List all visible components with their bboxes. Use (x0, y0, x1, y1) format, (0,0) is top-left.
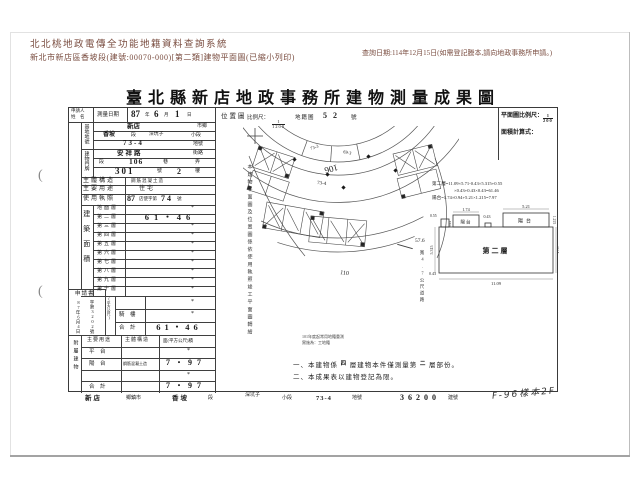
dim-label: 11.09 (491, 281, 502, 286)
attached-row-value: * (187, 348, 190, 355)
floor-label: 第二層 (97, 215, 118, 221)
dim-label: 5.21 (522, 204, 530, 209)
floor-plan: 第二層 陽台 陽台 5.21 1.74 0.55 0.43 0.94 1.215… (429, 203, 559, 291)
document-title: 臺北縣新店地政事務所建物測量成果圖 (68, 84, 558, 108)
floor-plan-room-label: 第二層 (483, 246, 510, 255)
rule (69, 122, 215, 123)
attached-row-use: 陽 台 (89, 361, 106, 367)
rule (81, 347, 215, 348)
resurvey-stamp: 101年度起常用地籍重測 (302, 335, 344, 339)
arcade-value: * (191, 311, 194, 318)
dim-label: 0.94 (448, 221, 452, 227)
rule (498, 108, 499, 160)
survey-date-day-unit: 日 (187, 113, 192, 118)
rule (69, 335, 215, 336)
door-section-label: 建物門牌 (83, 151, 89, 175)
license-label: 使用執照 (83, 196, 115, 203)
remark-1-text: 一、本建物係 (293, 362, 338, 369)
floor-label: 第八層 (97, 269, 118, 275)
floor-label: 第三層 (97, 224, 118, 230)
area-calc-label: 面積計算式： (501, 130, 537, 137)
rule (81, 149, 215, 150)
dim-label: 1.215 (552, 216, 556, 225)
attached-total-label: 合 計 (89, 384, 106, 390)
license-text: 店使字第 (139, 197, 157, 202)
attached-header-area: 面(平方公尺)積 (163, 339, 193, 344)
location-map: 106 73-3 69-3 73-4 110 (243, 126, 459, 296)
distance-value: 57.6 (415, 238, 425, 244)
remark-1-fill: 二 (420, 361, 427, 367)
rule (93, 140, 215, 141)
area-formula-line3: 陽台=1.74×0.94+5.21×1.215=7.97 (432, 195, 497, 200)
survey-date-day: 1 (175, 110, 180, 120)
remark-1-text: 層部份。 (429, 362, 459, 369)
structure-label: 主體構造 (83, 178, 115, 185)
footer-township-label: 鄉鎮市 (126, 396, 141, 402)
survey-point-icon (341, 185, 345, 189)
remark-1: 一、本建物係 四 層建物本件僅測量第 二 層部份。 (293, 361, 459, 369)
survey-chart-frame: 申請人 姓 名 測量日期 87 年 6 月 1 日 基地地號 新店 市鄉 香坡 … (68, 107, 558, 392)
total-label: 合 計 (119, 325, 136, 331)
subject-parcel-label: 73-4 (317, 181, 327, 187)
addr-lane-label: 巷 (163, 160, 168, 166)
applicant-label: 姓 名 (71, 115, 85, 120)
addr-floor-label: 樓 (195, 169, 200, 175)
floor-value: * (191, 259, 194, 266)
dim-label: 1.74 (462, 207, 470, 212)
attached-total-value: 7・97 (159, 382, 213, 391)
dim-label: 0.55 (430, 214, 437, 218)
floor-label: 第六層 (97, 251, 118, 257)
survey-date-month: 6 (154, 110, 159, 120)
location-title: 位置圖 (221, 113, 247, 120)
footer-section-value: 香坡 (172, 395, 189, 402)
land-section-suffix: 段 (131, 133, 136, 139)
building-cluster (309, 216, 367, 247)
plan-scale-denominator: 200 (543, 119, 553, 124)
query-date-note: 查詢日期:114年12月15日(如需登記謄本,請向地政事務所申請。) (362, 50, 552, 58)
floor-label: 第四層 (97, 233, 118, 239)
balcony-label: 陽台 (461, 219, 472, 226)
rule (93, 205, 94, 296)
area-formula-line1: 第二層=11.09×5.71-0.43×5.315+0.55 (432, 181, 502, 186)
area-formula-line2: ×0.43+0.43×0.43=61.46 (454, 188, 499, 193)
survey-date-month-unit: 月 (164, 113, 169, 118)
system-title: 北北桃地政電傳全功能地籍資料查詢系統 (30, 40, 228, 50)
rule (93, 108, 94, 177)
building-cluster (391, 144, 443, 198)
rule (81, 296, 215, 297)
application-date: 87年6月4日 (75, 300, 80, 333)
road-number-label: 106 (323, 162, 339, 175)
footer-township-value: 新店 (85, 395, 102, 402)
rule (105, 289, 106, 335)
floor-value: * (191, 268, 194, 275)
addr-alley-label: 弄 (195, 160, 200, 166)
distance-note-vertical: 寬4.7公尺道路 (419, 250, 424, 338)
land-city-label: 市鄉 (197, 124, 207, 130)
rule (125, 177, 126, 296)
page-edge-bottom (10, 455, 630, 457)
addr-floor: 2 (177, 168, 181, 177)
floor-label: 第十層 (97, 287, 118, 293)
balcony-label: 陽台 (518, 218, 534, 225)
rule (81, 370, 215, 371)
floor-value: 61・46 (127, 213, 213, 222)
application-title: 申請書 (75, 291, 95, 297)
land-number-label: 地號 (193, 142, 203, 148)
addr-number-label: 號 (157, 169, 162, 175)
usage-label: 主要用途 (83, 186, 115, 193)
parcel-label: 73-3 (310, 143, 320, 151)
footer-parcel-label: 地號 (352, 396, 362, 402)
page-edge-left (10, 32, 11, 456)
remark-1-text: 層建物本件僅測量第 (350, 362, 418, 369)
dim-label: 0.43 (484, 214, 491, 219)
resurvey-stamp: 實施為：工地籍 (302, 341, 330, 345)
rule (81, 194, 215, 195)
land-section-label: 基地地號 (83, 124, 89, 148)
license-number: 74 (161, 195, 173, 204)
survey-point-icon (292, 157, 296, 161)
floor-plan-outline (439, 213, 553, 273)
footer-parcel-value: 73-4 (316, 395, 332, 402)
attached-header-structure: 主體構造 (125, 338, 149, 344)
attached-row-structure: 鋼筋混凝土造 (123, 362, 147, 366)
map-sheet-label: 地籍圖 (295, 115, 315, 121)
rule (127, 108, 128, 122)
floor-label: 地面層 (97, 206, 118, 212)
plan-scale-text: 平面圖比例尺： (501, 113, 543, 119)
street-label: 街路 (193, 151, 203, 157)
building-cluster (262, 202, 324, 238)
survey-date-year-unit: 年 (145, 113, 150, 118)
survey-date-year: 87 (131, 110, 140, 120)
parcel-label: 69-3 (343, 149, 353, 156)
land-city: 新店 (127, 123, 140, 130)
floor-value: * (191, 286, 194, 293)
floor-value: * (191, 250, 194, 257)
footer-subsection-label: 小段 (282, 396, 292, 402)
attached-header-use: 主要用途 (87, 338, 111, 344)
floor-value: * (191, 232, 194, 239)
attached-row-use: 平 台 (89, 349, 106, 355)
plan-scale-label: 平面圖比例尺：1200 (501, 113, 553, 124)
location-scale-label: 比例尺： (247, 115, 269, 121)
addr-lane: 106 (129, 158, 143, 166)
floor-label: 第五層 (97, 242, 118, 248)
usage-value: 住宅 (139, 186, 155, 193)
rule (81, 335, 82, 393)
footer-section-label: 段 (208, 396, 213, 402)
rule (93, 158, 215, 159)
map-sheet-suffix: 號 (351, 115, 357, 121)
land-section: 香坡 (103, 132, 115, 139)
remark-1-fill: 四 (341, 361, 348, 367)
floor-value: * (191, 205, 194, 212)
floor-value: * (191, 299, 194, 306)
transcription-note-vertical: 本建物平面圖及位置圖係依使用執照竣工平面圖轉繪 (246, 164, 252, 352)
punch-mark-bottom: ( (38, 284, 43, 299)
floor-value: * (191, 223, 194, 230)
rule (93, 167, 215, 168)
license-year: 87 (127, 195, 135, 204)
page-edge-right (629, 32, 630, 456)
map-sheet-number: 52 (323, 112, 343, 121)
structure-value: 鋼筋混凝土造 (131, 179, 164, 184)
floor-value: * (191, 277, 194, 284)
north-cross-icon (247, 128, 263, 144)
attached-row-value: 7・97 (159, 359, 213, 368)
rule (215, 108, 216, 393)
rule (121, 335, 122, 393)
area-unit-label: (平方公尺) (107, 297, 111, 334)
floor-label: 第九層 (97, 278, 118, 284)
footer-building-number-value: 36200 (400, 394, 440, 403)
rule (115, 296, 116, 335)
dim-label: 5.315 (429, 246, 434, 255)
footer-subsection-value: 深坑子 (245, 393, 260, 399)
land-number: 73-4 (123, 140, 144, 148)
footer-building-number-label: 建號 (448, 396, 458, 402)
total-value: 61・46 (145, 323, 213, 332)
rule (115, 309, 215, 310)
application-number: 字第3202號 (89, 300, 94, 333)
attached-row-value: * (187, 372, 190, 379)
punch-mark-top: ( (38, 168, 43, 183)
dim-label: 0.43 (429, 271, 436, 276)
page-edge-top (10, 32, 630, 33)
addr-number: 301 (115, 167, 135, 177)
floor-label: 第七層 (97, 260, 118, 266)
attached-section-label: 附屬建物 (72, 340, 78, 390)
document-subtitle: 新北市新店區香坡段(建號:00070-000)[第二類]建物平面圖(已縮小列印) (30, 54, 295, 63)
addr-duan-label: 段 (99, 160, 104, 166)
building-area-label: 建築面積 (82, 210, 90, 294)
survey-date-label: 測量日期 (97, 112, 119, 118)
dim-label: 5.71 (557, 247, 559, 254)
land-subsection-label: 小段 (191, 133, 201, 139)
outer-road-label: 110 (340, 270, 350, 277)
arcade-label: 騎 樓 (119, 312, 136, 318)
floor-value: * (191, 241, 194, 248)
remark-2: 二、本成果表以建物登記為限。 (293, 374, 398, 381)
license-suffix: 號 (177, 197, 182, 202)
land-subsection: 深坑子 (149, 132, 163, 137)
